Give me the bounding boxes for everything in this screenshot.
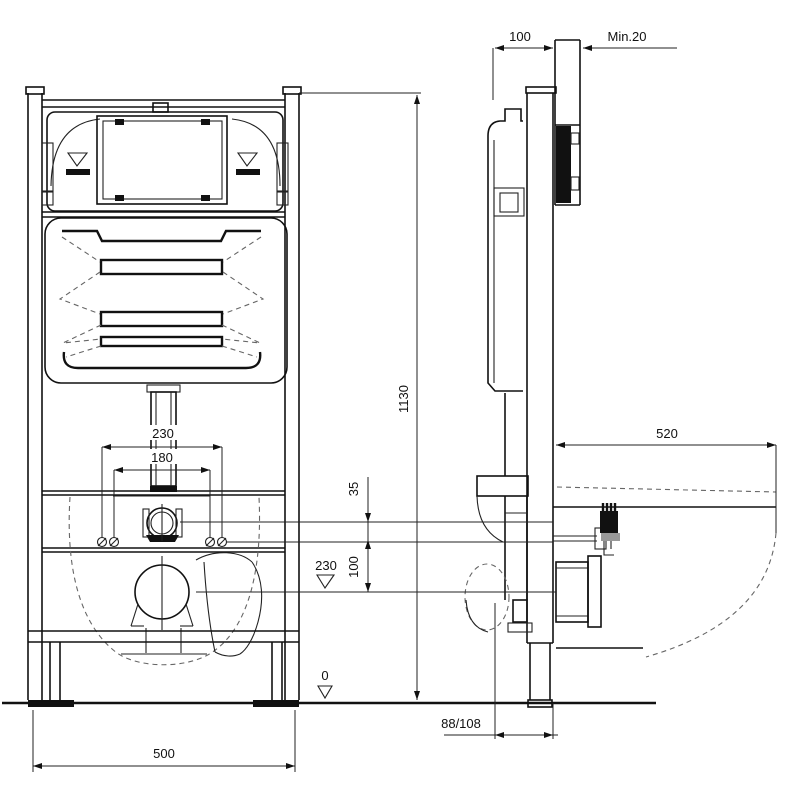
baffle-row-2 (101, 260, 222, 274)
dim-label-100-vert: 100 (346, 556, 361, 578)
outlet-connector (556, 556, 601, 627)
drain-elbow-hidden (465, 564, 509, 632)
dim-label-180: 180 (151, 450, 173, 465)
dimension-frame-height: 1130 (299, 93, 421, 700)
front-view (26, 87, 301, 707)
dim-label-500: 500 (153, 746, 175, 761)
dim-label-230-elev: 230 (315, 558, 337, 573)
drain-outlet (131, 556, 193, 653)
dimension-min-wall: Min.20 (583, 29, 677, 51)
frame-bar-cap (526, 87, 556, 93)
technical-drawing-canvas: 230 180 35 100 230 1130 0 (0, 0, 800, 800)
elevation-marker-outlet: 230 (315, 558, 337, 588)
cistern-profile (488, 109, 524, 391)
baffle-row-3 (101, 312, 222, 326)
wall-box (555, 40, 580, 205)
dim-label-88-108: 88/108 (441, 716, 481, 731)
dimension-35-100-chain: 35 100 (346, 477, 371, 592)
rail-cap-left (26, 87, 44, 94)
cistern (45, 218, 287, 383)
elevation-marker-floor: 0 (318, 668, 332, 698)
dimension-frame-depth: 100 (493, 29, 553, 100)
dim-label-520: 520 (656, 426, 678, 441)
frame-feet (28, 631, 299, 707)
flush-pipe-side (477, 393, 532, 632)
water-level-symbol-left (66, 153, 90, 175)
baffle-row-4 (101, 337, 222, 346)
dimension-install-depth: 520 (556, 426, 776, 533)
flush-connection (143, 504, 182, 542)
dim-label-35: 35 (346, 482, 361, 496)
baffle-row-1 (62, 231, 261, 241)
dimension-frame-width: 500 (33, 710, 295, 772)
bowl-outline-side (553, 487, 776, 657)
water-level-symbol-right (236, 153, 260, 175)
dim-label-1130: 1130 (396, 385, 411, 413)
side-view (465, 40, 776, 707)
dim-label-0: 0 (321, 668, 328, 683)
baffle-row-5 (64, 352, 260, 368)
dim-label-100-top: 100 (509, 29, 531, 44)
dim-label-230-top: 230 (152, 426, 174, 441)
flush-plate-recess (556, 126, 571, 203)
wc-frame-drawing: 230 180 35 100 230 1130 0 (0, 0, 800, 800)
flush-plate-frame (42, 112, 288, 211)
drain-pipe (527, 643, 553, 707)
rail-cap-right (283, 87, 301, 94)
access-opening (97, 116, 227, 204)
dim-label-min20: Min.20 (607, 29, 646, 44)
fixing-rod (553, 503, 620, 555)
